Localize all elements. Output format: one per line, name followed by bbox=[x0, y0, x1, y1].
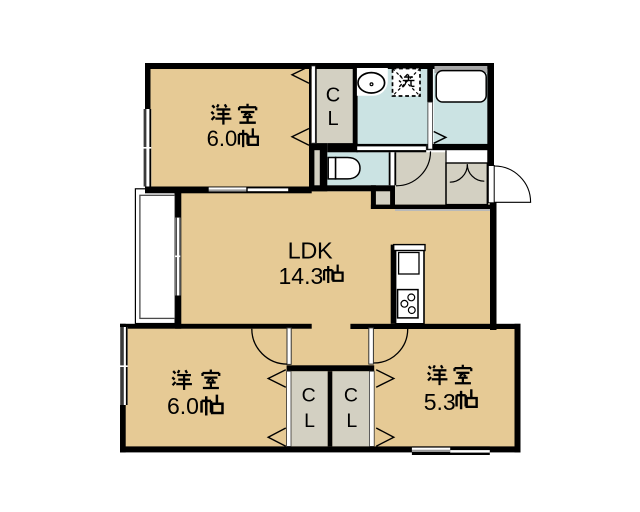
svg-text:6.0: 6.0 bbox=[207, 126, 238, 151]
svg-text:L: L bbox=[304, 410, 315, 432]
svg-text:C: C bbox=[326, 85, 340, 107]
svg-text:C: C bbox=[302, 385, 316, 407]
svg-text:6.0: 6.0 bbox=[167, 393, 199, 419]
svg-text:C: C bbox=[344, 385, 358, 407]
svg-text:14.3: 14.3 bbox=[279, 263, 324, 289]
svg-text:5.3: 5.3 bbox=[424, 389, 456, 415]
svg-text:LDK: LDK bbox=[288, 238, 333, 264]
svg-text:L: L bbox=[346, 410, 357, 432]
svg-text:L: L bbox=[327, 108, 338, 130]
